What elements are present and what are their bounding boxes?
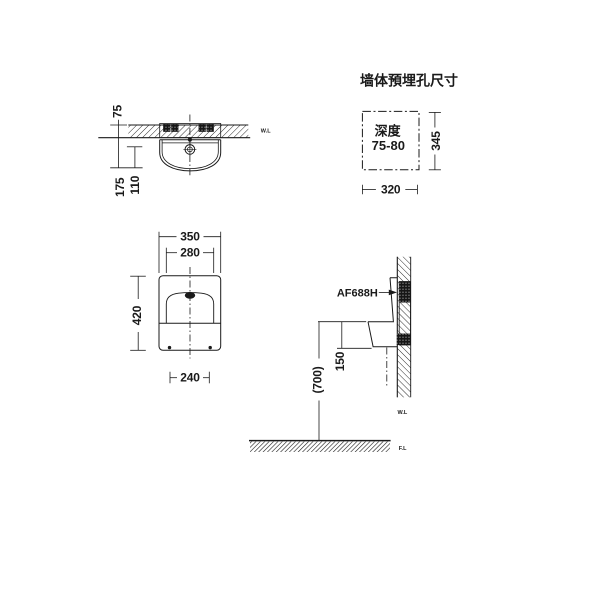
model-label: AF688H: [337, 287, 378, 299]
dim-label-350: 350: [180, 230, 200, 244]
dimension-175-110: 175 110: [110, 147, 142, 197]
dim-label-700: (700): [310, 366, 324, 393]
wall-line-marker-top: W.L: [261, 129, 271, 135]
embedded-valve-top: [399, 282, 411, 303]
dim-label-110: 110: [128, 175, 142, 194]
detail-title: 墙体預埋孔尺寸: [360, 73, 458, 89]
urinal-installation-drawing: 75 175 110 W.L 墙体預埋孔尺寸 深度 75-80 345 32: [0, 0, 600, 600]
depth-value: 75-80: [372, 138, 405, 153]
model-callout: AF688H: [337, 287, 397, 299]
dim-label-420: 420: [130, 305, 144, 325]
side-view: AF688H 150 (700) W.L: [310, 257, 410, 441]
dim-label-75: 75: [111, 105, 125, 118]
technical-drawing-page: 75 175 110 W.L 墙体預埋孔尺寸 深度 75-80 345 32: [0, 0, 600, 600]
bolt-hole-left: [168, 346, 171, 349]
front-view: 350 280 420 240: [130, 230, 221, 385]
wall-line-marker-side: W.L: [398, 410, 408, 416]
dim-label-345: 345: [429, 131, 443, 151]
dim-label-150: 150: [333, 351, 347, 371]
dimension-240: 240: [170, 371, 209, 385]
embedded-valve-bottom: [397, 334, 411, 346]
dim-label-280: 280: [180, 246, 200, 260]
leader-arrow-icon: [389, 290, 397, 296]
dim-label-320: 320: [381, 182, 401, 196]
bolt-hole-right: [209, 346, 212, 349]
depth-label: 深度: [375, 123, 402, 138]
dimension-75: 75: [110, 105, 127, 168]
floor: F.L: [249, 441, 407, 452]
floor-line-marker: F.L: [399, 446, 407, 452]
detail-panel: 墙体預埋孔尺寸 深度 75-80 345 320: [360, 73, 458, 197]
dimension-420: 420: [130, 276, 146, 350]
dim-label-175: 175: [113, 177, 127, 197]
wall-hatch-top-view: [128, 125, 248, 138]
dimension-150: 150: [318, 322, 372, 372]
top-view: 75 175 110 W.L: [98, 105, 271, 198]
dimension-700: (700): [310, 322, 324, 441]
dimension-345: 345: [429, 112, 443, 169]
dim-label-240: 240: [180, 371, 200, 385]
floor-hatch: [250, 442, 390, 452]
dimension-320: 320: [362, 182, 417, 196]
